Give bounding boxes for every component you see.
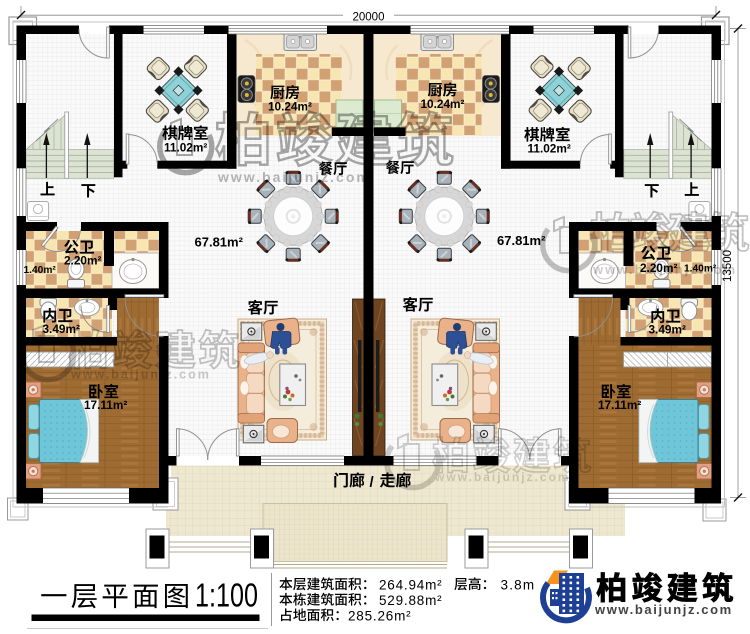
svg-text:2.20m²: 2.20m² [64,254,101,268]
svg-text:20000: 20000 [353,12,385,24]
svg-text:1.40m²: 1.40m² [24,265,57,276]
svg-text:17.11m²: 17.11m² [598,398,641,412]
svg-text:285.26m²: 285.26m² [348,609,411,624]
svg-text:3.49m²: 3.49m² [43,322,80,336]
svg-text:10.24m²: 10.24m² [421,97,465,111]
svg-text:www.baijunjz.com: www.baijunjz.com [217,169,371,185]
svg-text:11.02m²: 11.02m² [528,142,571,156]
svg-text:264.94m²: 264.94m² [379,578,442,593]
svg-text:10.24m²: 10.24m² [268,100,312,114]
svg-text:2.20m²: 2.20m² [640,261,677,275]
svg-text:3.49m²: 3.49m² [649,323,686,337]
svg-text:www.baijunjz.com: www.baijunjz.com [434,470,571,484]
svg-text:11.02m²: 11.02m² [164,141,207,155]
svg-text:67.81m²: 67.81m² [497,233,546,248]
svg-text:www.baijunjz.com: www.baijunjz.com [70,368,211,382]
svg-text:1.40m²: 1.40m² [684,264,717,275]
svg-text:www.baijunjz.com: www.baijunjz.com [594,602,733,617]
svg-text:17.11m²: 17.11m² [84,398,127,412]
svg-text:529.88m²: 529.88m² [379,593,442,608]
svg-text:67.81m²: 67.81m² [195,235,244,250]
svg-text:1:100: 1:100 [195,577,258,614]
svg-text:3.8m: 3.8m [501,578,536,593]
